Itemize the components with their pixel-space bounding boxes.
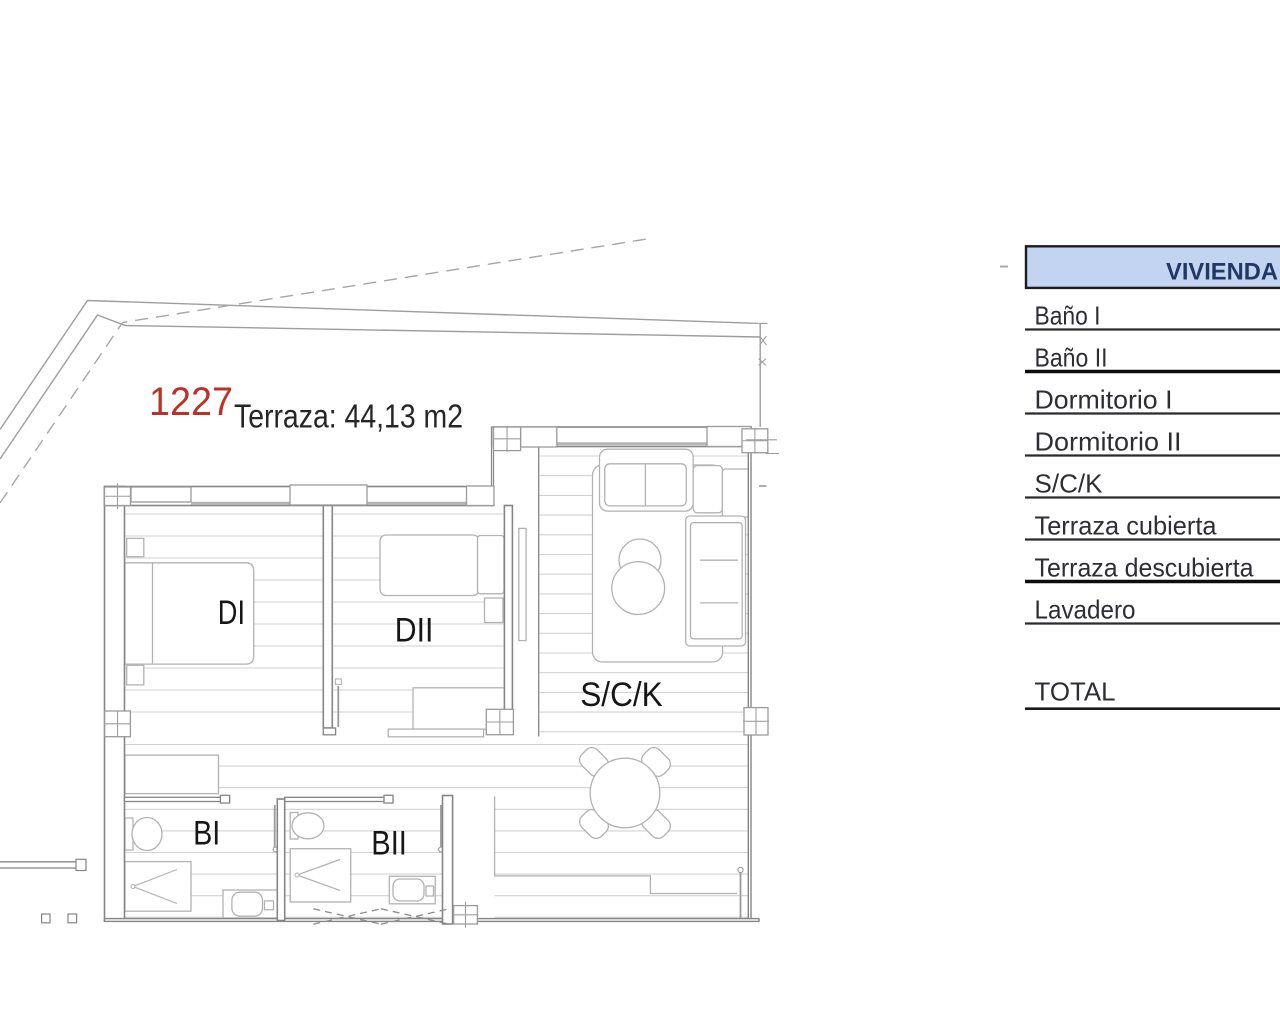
svg-text:1227: 1227 [149,380,233,424]
svg-text:Terraza descubierta: Terraza descubierta [1035,552,1255,582]
svg-text:Baño II: Baño II [1035,342,1108,372]
svg-text:DI: DI [218,594,245,632]
svg-text:Lavadero: Lavadero [1035,594,1136,624]
svg-text:Terraza: 44,13 m2: Terraza: 44,13 m2 [234,399,463,436]
svg-text:TOTAL: TOTAL [1035,677,1116,707]
svg-text:Baño I: Baño I [1035,300,1101,330]
svg-text:S/C/K: S/C/K [1035,468,1104,498]
svg-text:Dormitorio I: Dormitorio I [1035,384,1173,414]
svg-text:S/C/K: S/C/K [580,676,663,714]
svg-text:DII: DII [395,612,434,650]
svg-text:BII: BII [371,825,407,863]
svg-text:BI: BI [193,814,220,852]
svg-text:Dormitorio II: Dormitorio II [1035,426,1182,456]
svg-text:Terraza cubierta: Terraza cubierta [1035,510,1218,540]
svg-text:VIVIENDA: VIVIENDA [1166,259,1278,286]
